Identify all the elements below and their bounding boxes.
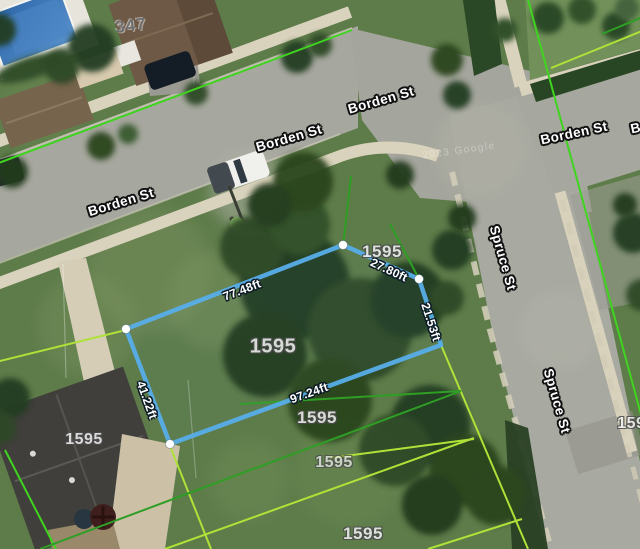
vertex-handle-e[interactable] (166, 440, 175, 449)
map-canvas: Borden St Borden St Borden St Borden St … (0, 0, 640, 549)
vertex-handle-a[interactable] (122, 325, 131, 334)
vertex-handle-c[interactable] (415, 275, 424, 284)
satellite-map (0, 0, 640, 549)
vertex-handle-b[interactable] (339, 241, 348, 250)
